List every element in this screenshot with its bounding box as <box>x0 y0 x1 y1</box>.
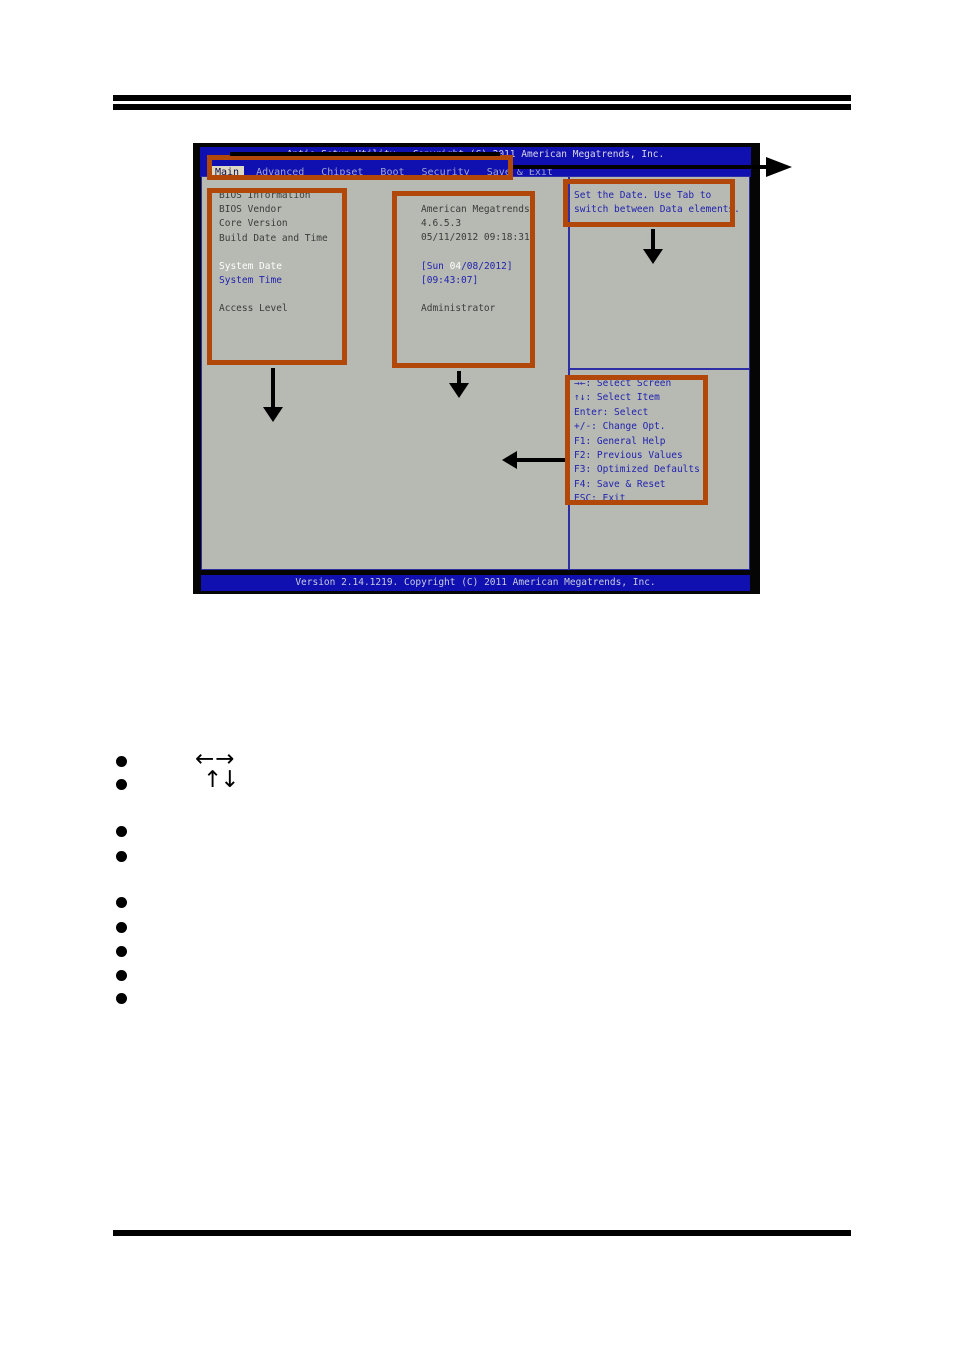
arrow-right-head-icon <box>766 157 792 177</box>
panel-vertical-divider <box>568 177 570 569</box>
callout-box-info-labels <box>207 188 347 365</box>
arrow-down-help-head-icon <box>643 249 663 264</box>
arrow-down-left-head-icon <box>263 407 283 422</box>
arrow-right-line <box>513 165 766 169</box>
arrow-down-mid-head-icon <box>449 383 469 398</box>
arrow-down-help-line <box>651 229 655 250</box>
bullet-7 <box>116 946 127 957</box>
up-down-arrows-icon: ↑↓ <box>203 767 238 793</box>
arrow-down-left-line <box>271 368 275 408</box>
bullet-5 <box>116 897 127 908</box>
callout-box-menu-bar <box>207 155 513 180</box>
top-rule-2 <box>113 104 851 110</box>
bullet-3 <box>116 826 127 837</box>
bullet-8 <box>116 970 127 981</box>
bullet-2 <box>116 779 127 790</box>
help-panel-divider <box>568 368 750 370</box>
callout-top-line <box>230 152 500 156</box>
bullet-1 <box>116 756 127 767</box>
callout-box-info-values <box>392 191 535 368</box>
bottom-rule <box>113 1230 851 1236</box>
callout-box-help-text <box>563 179 735 227</box>
bullet-4 <box>116 851 127 862</box>
arrow-left-line <box>517 458 565 462</box>
bios-status-bar: Version 2.14.1219. Copyright (C) 2011 Am… <box>201 575 750 591</box>
bullet-9 <box>116 993 127 1004</box>
arrow-left-head-icon <box>502 451 517 469</box>
callout-box-hotkeys <box>565 375 708 505</box>
top-rule-1 <box>113 95 851 101</box>
manual-page: Aptio Setup Utility - Copyright (C) 2011… <box>0 0 954 1350</box>
bullet-6 <box>116 922 127 933</box>
